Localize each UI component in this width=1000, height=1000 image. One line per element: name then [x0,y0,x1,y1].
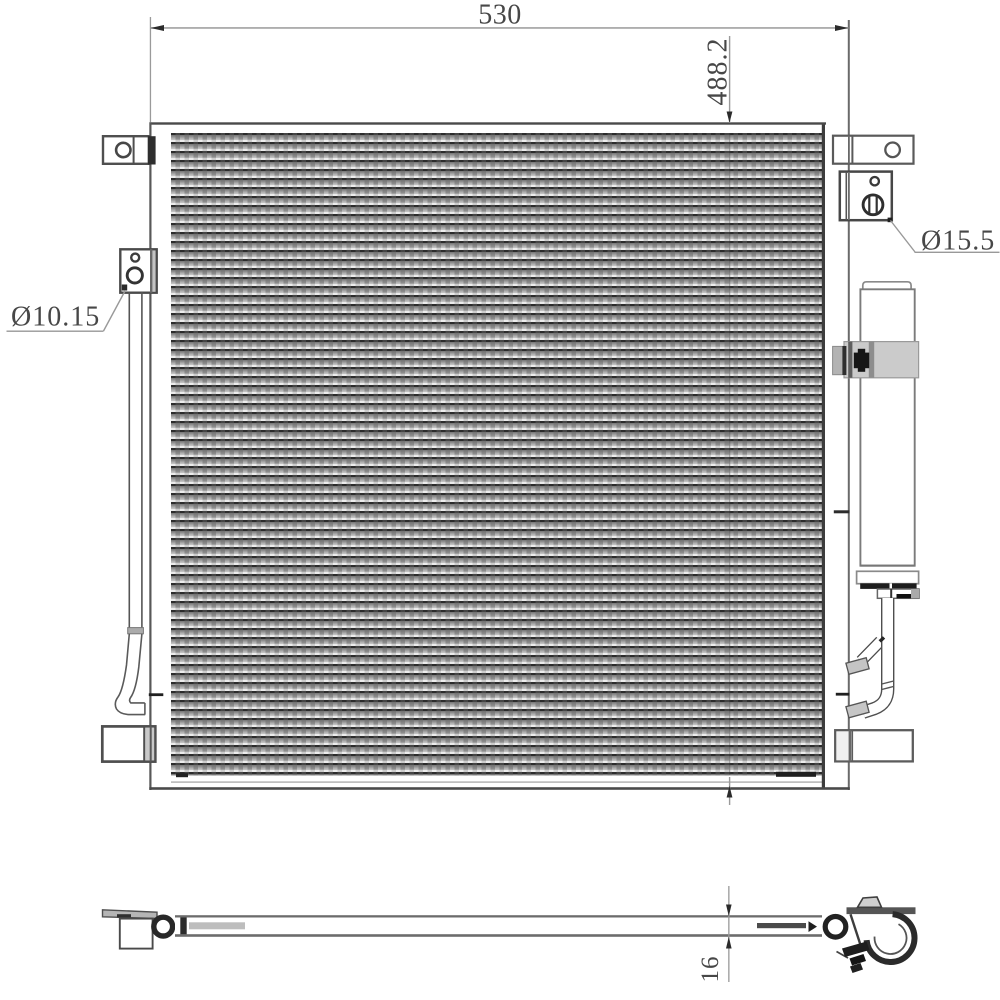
svg-text:530: 530 [478,0,522,31]
svg-text:488.2: 488.2 [703,38,734,106]
svg-text:Ø15.5: Ø15.5 [921,226,995,257]
svg-text:Ø10.15: Ø10.15 [11,302,100,333]
svg-text:16: 16 [697,956,724,983]
